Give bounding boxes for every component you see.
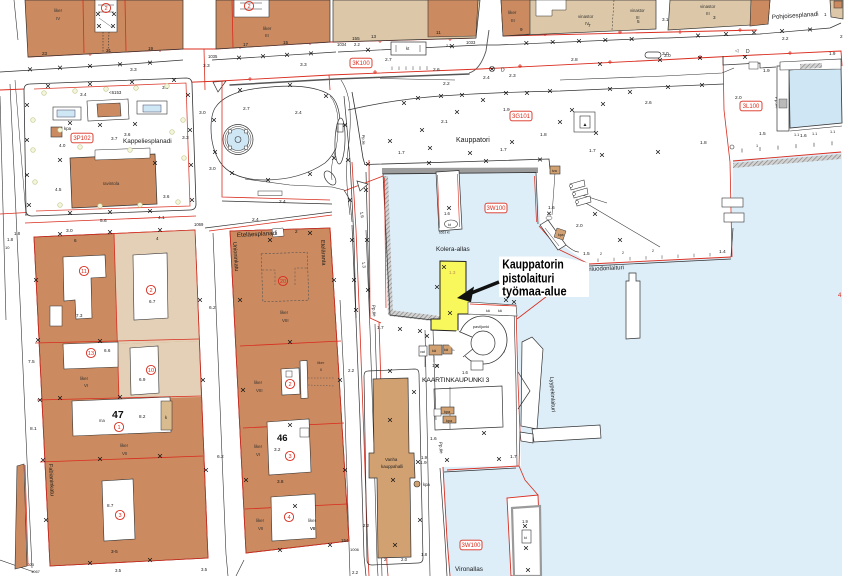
svg-text:2.4: 2.4 [295,110,302,116]
svg-text:Pp.tie: Pp.tie [438,442,444,455]
svg-text:2.4: 2.4 [252,217,259,223]
svg-text:1067: 1067 [31,569,41,574]
svg-text:liker: liker [280,310,289,315]
svg-text:15: 15 [283,40,289,45]
svg-text:3.3: 3.3 [130,67,137,73]
svg-text:VI: VI [256,452,260,457]
svg-text:vinastor: vinastor [700,4,716,9]
svg-text:1.1: 1.1 [830,130,835,134]
svg-text:2.7: 2.7 [385,57,392,63]
svg-text:3.7: 3.7 [111,136,118,141]
svg-text:47: 47 [112,409,124,421]
svg-text:9: 9 [520,27,523,32]
svg-text:D: D [746,49,750,55]
svg-text:2.0: 2.0 [576,223,583,229]
svg-text:8.2: 8.2 [139,414,146,419]
svg-text:3.3: 3.3 [203,63,210,69]
svg-text:III: III [511,18,515,23]
svg-text:VII: VII [310,526,315,531]
svg-text:2: 2 [622,251,624,255]
svg-text:III: III [706,11,710,16]
svg-text:liker: liker [120,443,129,448]
svg-text:1.6: 1.6 [444,211,450,216]
svg-text:7.5: 7.5 [28,359,35,365]
svg-text:2.0: 2.0 [735,95,742,101]
svg-text:21: 21 [106,48,112,53]
svg-text:1.8: 1.8 [7,237,14,242]
svg-text:6.9: 6.9 [139,377,146,382]
svg-text:2.6: 2.6 [433,67,440,73]
svg-text:3.2: 3.2 [274,447,281,452]
svg-text:liker: liker [254,444,263,449]
svg-text:tza: tza [552,169,557,173]
svg-text:3: 3 [118,513,121,519]
svg-text:3.0: 3.0 [664,53,671,59]
svg-text:1.1: 1.1 [812,132,817,136]
svg-text:11: 11 [81,269,87,275]
svg-text:1.3: 1.3 [361,261,367,268]
svg-text:1.3: 1.3 [449,270,456,275]
svg-text:ravintola: ravintola [103,181,120,186]
svg-text:2.2: 2.2 [348,368,355,373]
svg-text:2.2: 2.2 [352,570,359,575]
svg-text:3.3: 3.3 [300,62,307,68]
svg-text:Pp.tie: Pp.tie [371,305,377,318]
svg-text:VII: VII [258,526,263,531]
svg-text:<6153: <6153 [109,90,122,95]
svg-text:4.0: 4.0 [59,143,66,148]
svg-text:VI: VI [84,383,88,388]
svg-text:2.7: 2.7 [243,106,250,112]
svg-text:kä: kä [498,309,502,313]
svg-text:3.0: 3.0 [209,166,216,172]
svg-text:4: 4 [287,515,290,521]
svg-text:1033: 1033 [466,40,476,45]
svg-text:2 2: 2 2 [446,44,451,48]
svg-text:2: 2 [247,4,250,10]
svg-text:2: 2 [104,6,107,12]
svg-text:D: D [501,68,505,74]
svg-text:Kauppatorin: Kauppatorin [502,256,564,271]
svg-text:4.1: 4.1 [158,215,165,221]
svg-text:1.5: 1.5 [759,131,766,137]
svg-text:11: 11 [436,30,441,35]
svg-text:3W100: 3W100 [461,543,481,549]
svg-text:1.9: 1.9 [522,519,528,524]
svg-text:1.6: 1.6 [359,211,365,218]
svg-text:2.0: 2.0 [401,557,408,562]
svg-text:KAARTINKAUPUNKI 3: KAARTINKAUPUNKI 3 [422,377,490,384]
svg-text:1.7: 1.7 [500,147,507,153]
svg-text:2.2: 2.2 [782,36,789,41]
svg-text:1.9: 1.9 [829,51,836,56]
svg-text:1.6: 1.6 [548,205,555,211]
svg-text:3W100: 3W100 [486,206,506,212]
svg-text:3.8: 3.8 [277,479,284,484]
svg-text:1.6: 1.6 [800,133,807,139]
svg-text:2.4: 2.4 [483,75,490,81]
svg-text:vat: vat [420,350,425,354]
svg-text:1: 1 [117,425,120,431]
svg-text:kä: kä [486,309,490,313]
svg-text:Vironallas: Vironallas [455,566,483,573]
svg-text:10: 10 [5,245,10,250]
svg-text:10: 10 [148,368,154,374]
svg-text:6.2: 6.2 [217,454,224,460]
svg-text:23: 23 [42,51,48,56]
svg-text:liker: liker [256,518,265,523]
svg-text:6.2: 6.2 [209,305,216,311]
svg-text:4: 4 [156,236,159,241]
svg-text:kpa: kpa [444,410,451,414]
svg-text:3G101: 3G101 [512,114,531,120]
svg-text:3P102: 3P102 [73,136,91,142]
svg-text:kt: kt [524,536,527,540]
svg-text:työmaa-alue: työmaa-alue [502,284,566,299]
svg-text:6: 6 [74,238,77,243]
svg-text:2: 2 [295,229,298,234]
svg-text:Kauppatori: Kauppatori [456,137,490,144]
svg-text:1: 1 [824,12,827,17]
svg-text:7: 7 [588,23,591,28]
svg-text:1.7: 1.7 [398,150,405,156]
svg-text:2: 2 [149,288,152,294]
svg-text:5.6: 5.6 [100,218,107,224]
svg-text:1.7: 1.7 [510,454,517,460]
svg-text:1.9: 1.9 [421,455,428,460]
svg-text:Kolera-allas: Kolera-allas [436,246,470,253]
svg-text:3: 3 [713,15,716,20]
svg-text:1035: 1035 [208,54,218,59]
svg-text:2.4: 2.4 [279,199,286,205]
svg-text:3.4: 3.4 [80,92,87,97]
svg-text:1: 1 [756,144,758,148]
svg-text:1.8: 1.8 [700,140,707,146]
svg-text:2: 2 [288,382,291,388]
svg-text:liker: liker [254,380,263,385]
svg-text:2.8: 2.8 [571,57,578,63]
svg-text:2.3: 2.3 [509,73,516,79]
svg-text:1.6: 1.6 [430,436,437,442]
svg-text:3-5: 3-5 [111,549,118,554]
svg-text:VII: VII [122,451,127,456]
svg-text:6.7: 6.7 [149,299,156,304]
svg-text:3.6: 3.6 [124,132,131,137]
svg-text:ma: ma [99,418,105,423]
svg-text:kauppahalli: kauppahalli [381,464,403,469]
svg-text:1.8: 1.8 [540,132,547,138]
svg-text:liker: liker [80,376,89,381]
svg-text:kpa: kpa [64,126,72,131]
svg-text:1.6: 1.6 [432,363,439,369]
svg-text:1.1: 1.1 [794,133,799,137]
svg-text:19: 19 [148,46,154,51]
svg-text:1.8: 1.8 [421,552,428,557]
svg-text:5: 5 [637,19,640,24]
svg-text:17: 17 [243,42,249,47]
svg-text:Kappeliesplanadi: Kappeliesplanadi [123,138,172,145]
svg-text:1.7: 1.7 [377,325,384,331]
svg-text:liker: liker [308,518,317,523]
svg-text:IV: IV [56,16,60,21]
svg-text:2: 2 [600,252,602,256]
svg-text:Vanha: Vanha [385,457,398,462]
svg-text:3: 3 [288,454,291,460]
svg-text:Pohjoisesplanadi: Pohjoisesplanadi [772,11,819,21]
svg-text:3.6: 3.6 [163,194,170,199]
svg-text:1.9: 1.9 [503,107,510,113]
svg-text:2.1: 2.1 [441,119,448,125]
svg-text:vinastor: vinastor [630,8,645,13]
svg-text:3L100: 3L100 [743,104,760,110]
svg-text:1.7: 1.7 [589,148,596,154]
svg-text:46: 46 [277,433,288,444]
svg-text:1069: 1069 [194,222,204,227]
svg-text:4.5: 4.5 [55,187,62,192]
svg-text:13: 13 [88,351,94,357]
svg-text:2: 2 [840,34,843,39]
svg-text:3.5: 3.5 [115,568,122,573]
svg-text:2.2: 2.2 [443,81,450,87]
svg-text:2.6: 2.6 [645,100,652,106]
svg-text:1.5: 1.5 [583,251,590,257]
svg-text:154: 154 [341,538,349,543]
svg-text:liker: liker [263,26,272,31]
svg-text:paviljonki: paviljonki [473,324,490,329]
svg-text:3.3: 3.3 [182,135,189,141]
svg-text:1.9: 1.9 [763,68,770,74]
svg-text:3.1: 3.1 [662,17,669,22]
svg-text:3.0: 3.0 [66,228,73,234]
svg-text:◁: ◁ [735,48,739,53]
svg-text:vinastor: vinastor [578,14,594,19]
svg-text:VIII: VIII [256,388,263,393]
svg-text:kpa: kpa [446,419,453,423]
svg-text:III: III [265,33,269,38]
svg-text:6.6: 6.6 [104,348,111,353]
svg-text:1.8: 1.8 [14,231,21,236]
svg-text:13: 13 [371,34,377,39]
svg-text:liker: liker [317,360,325,365]
svg-text:kpa: kpa [423,482,430,487]
svg-text:3.5: 3.5 [201,567,208,572]
svg-text:1034: 1034 [337,42,347,47]
svg-text:7.3: 7.3 [76,313,83,318]
svg-text:liker: liker [508,10,517,15]
svg-text:1.9: 1.9 [420,460,427,466]
svg-text:8.7: 8.7 [107,503,114,508]
svg-text:3.0: 3.0 [199,110,206,116]
svg-text:Pp.tie: Pp.tie [361,135,366,145]
svg-text:1.4: 1.4 [719,249,726,255]
svg-text:▲: ▲ [583,122,588,128]
svg-text:kpa: kpa [558,233,564,237]
svg-text:3K100: 3K100 [352,61,370,67]
svg-text:1.6: 1.6 [462,370,468,375]
svg-text:1006: 1006 [350,547,360,552]
svg-text:2: 2 [652,249,654,253]
svg-text:liker: liker [54,8,63,13]
svg-text:2.2: 2.2 [354,42,360,47]
svg-text:II: II [320,367,322,372]
svg-text:20: 20 [280,279,286,285]
svg-text:155: 155 [352,36,360,41]
svg-text:8.1: 8.1 [30,426,37,432]
svg-text:6553 kt: 6553 kt [439,231,450,235]
svg-text:VIII: VIII [282,318,289,323]
